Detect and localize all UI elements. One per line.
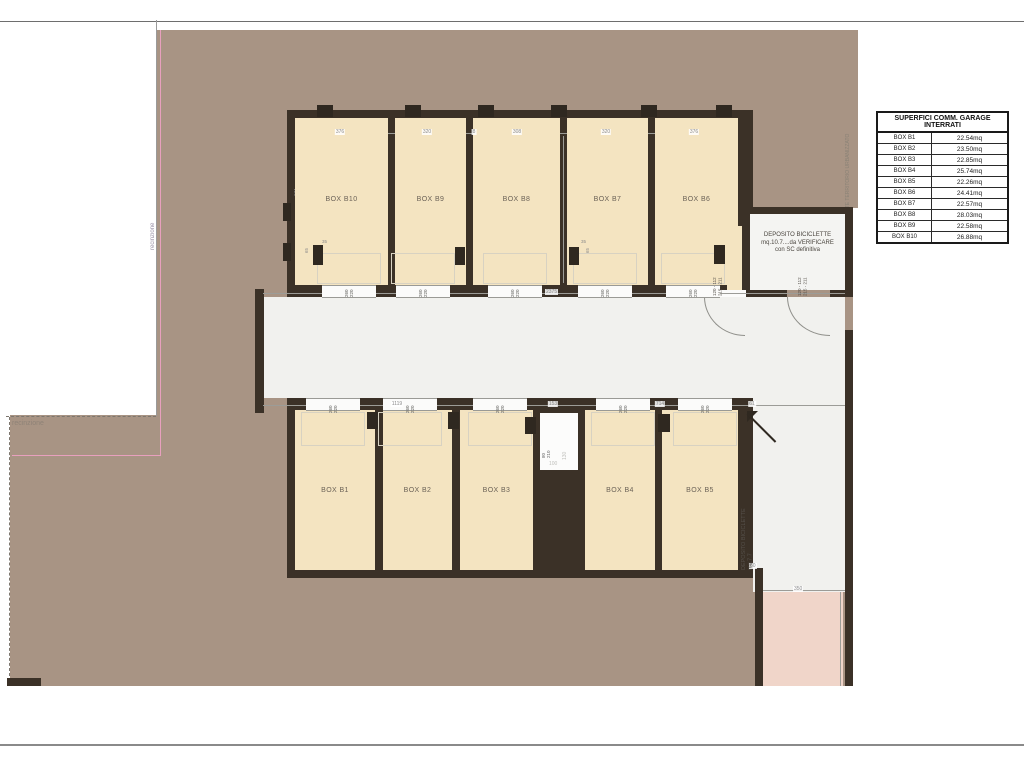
shaft-door-h: 210 [546,428,551,458]
garage-box-label: BOX B7 [594,196,622,204]
garage-door-height: 220 [693,279,698,297]
legend-box-name: BOX B1 [877,132,932,144]
garage-door-height: 220 [515,279,520,297]
ramp-area [763,592,843,686]
dim-corridor-bottom: 153 [548,401,558,407]
pillar [313,245,323,265]
garage-door-height: 220 [410,395,415,413]
dim-ramp-350: 350 [793,586,803,592]
garage-door-swing-zone [301,412,365,446]
garage-door-height: 220 [423,279,428,297]
legend-box-name: BOX B9 [877,221,932,232]
legend-box-name: BOX B10 [877,232,932,244]
pedestrian-door-dim2: 215 - 211 [803,262,809,296]
garage-door-swing-zone [468,412,532,446]
pillar [525,417,536,434]
shaft-divider-line [557,480,558,570]
wall-pilaster [283,203,291,221]
garage-box-label: BOX B2 [404,487,432,495]
shaft-dim-130: 130 [562,438,568,460]
frame-line-bottom [0,744,1024,746]
garage-door-size-label: 260220 [700,395,710,413]
boundary-wall-stub [7,678,41,686]
pillar [367,412,378,429]
dim-top-width: 376 [689,129,699,135]
garage-box-label: BOX B3 [483,487,511,495]
legend-box-area: 24.41mq [932,188,1009,199]
fence-line-horizontal [12,455,160,456]
wall-pilaster [716,105,732,117]
corridor-left-wall [255,289,264,413]
shaft-door-size-label: 80 210 [541,428,551,458]
legend-box-name: BOX B6 [877,188,932,199]
garage-door-swing-zone [673,412,737,446]
deposito-wall-left [742,214,750,297]
garage-door-height: 220 [333,395,338,413]
garage-door-height: 220 [705,395,710,413]
legend-box-area: 22.85mq [932,155,1009,166]
dim-line-depth-mid [563,136,564,283]
garage-door-size-label: 260220 [344,279,354,297]
legend-box-area: 25.74mq [932,166,1009,177]
frame-line-top [0,21,1024,22]
legend-row: BOX B1026.88mq [877,232,1008,244]
dim-corridor-bottom: 1119 [391,401,403,407]
garage-box-label: BOX B1 [321,487,349,495]
legend-row: BOX B922.58mq [877,221,1008,232]
pillar [448,412,459,429]
legend-title: SUPERFICI COMM. GARAGE INTERRATI [877,112,1008,132]
garage-box-label: BOX B10 [326,196,358,204]
right-courtyard [753,297,845,592]
survey-boundary-line [156,20,157,416]
garage-door-size-label: 260220 [688,279,698,297]
garage-box-label: BOX B9 [417,196,445,204]
legend-box-area: 22.54mq [932,132,1009,144]
pedestrian-door-dim2: 215 - 211 [718,262,724,296]
shaft-dim-100: 100 [549,461,557,467]
garage-door-size-label: 260220 [600,279,610,297]
garage-box-label: BOX B5 [686,487,714,495]
wall-pilaster [283,243,291,261]
legend-row: BOX B828.03mq [877,210,1008,221]
wall-pilaster [551,105,567,117]
dim-corridor-top: 2375 [545,289,558,295]
garage-door-size-label: 260220 [510,279,520,297]
garage-door-size-label: 260220 [495,395,505,413]
legend-row: BOX B722.57mq [877,199,1008,210]
deposito-wall-top [742,207,853,214]
legend-row: BOX B425.74mq [877,166,1008,177]
dim-line-ramp [763,590,845,591]
legend-row: BOX B522.26mq [877,177,1008,188]
legend-box-area: 22.26mq [932,177,1009,188]
legend-row: BOX B122.54mq [877,132,1008,144]
pedestrian-door-size-label: 120 - 112215 - 211 [797,262,808,296]
garage-door-swing-zone [591,412,655,446]
pillar [455,247,465,265]
deposito-room-label: DEPOSITO BICICLETTE mq.10.7....da VERIFI… [748,232,847,255]
dim-top-width: 376 [335,129,345,135]
wall-pilaster [641,105,657,117]
garage-door-size-label: 260220 [328,395,338,413]
legend-box-area: 22.57mq [932,199,1009,210]
legend-row: BOX B624.41mq [877,188,1008,199]
legend-box-area: 26.88mq [932,232,1009,244]
boundary-dashed-horizontal [6,416,156,417]
site-right-wall [845,330,853,686]
ramp-left-wall [755,568,763,686]
ramp-extension-line [840,592,841,686]
garage-door-size-label: 260220 [405,395,415,413]
legend-row: BOX B223.50mq [877,144,1008,155]
pillar [569,247,579,265]
legend-table: SUPERFICI COMM. GARAGE INTERRATI BOX B12… [876,111,1009,244]
dim-pillar-height: 65 [304,248,310,253]
dim-corridor-bottom: 61 [748,401,756,407]
wall-pilaster [405,105,421,117]
legend-box-area: 28.03mq [932,210,1009,221]
legend-box-name: BOX B7 [877,199,932,210]
deposito-right-line2: mq.7.7 [748,455,755,570]
dim-top-width: 320 [601,129,611,135]
territory-limit-label: LIMITE TERRITORIO URBANIZZATO [845,106,851,218]
garage-door-size-label: 260220 [618,395,628,413]
dim-top-width: 320 [422,129,432,135]
garage-box-label: BOX B6 [683,196,711,204]
pedestrian-door-size-label: 120 - 112215 - 211 [712,262,723,296]
garage-box-label: BOX B8 [503,196,531,204]
legend-box-name: BOX B8 [877,210,932,221]
garage-door-height: 220 [349,279,354,297]
deposito-line2: mq.10.7....da VERIFICARE [748,240,847,248]
deposito-line3: con SC definitiva [748,247,847,255]
legend-box-name: BOX B5 [877,177,932,188]
pillar [658,414,670,432]
dim-pillar-height: 65 [585,248,591,253]
garage-door-height: 220 [623,395,628,413]
garage-box-label: BOX B4 [606,487,634,495]
legend-row: BOX B322.85mq [877,155,1008,166]
boundary-dashed-vertical [9,417,10,686]
fence-label-bottom: recinzione [12,421,44,427]
garage-door-size-label: 260220 [418,279,428,297]
garage-door-swing-zone [378,412,442,446]
wall-pilaster [478,105,494,117]
deposito-line1: DEPOSITO BICICLETTE [748,232,847,240]
legend-box-name: BOX B4 [877,166,932,177]
fence-label-left: recinzione [150,150,156,250]
legend-box-area: 23.50mq [932,144,1009,155]
legend-box-name: BOX B2 [877,144,932,155]
dim-corridor-bottom: 714 [655,401,665,407]
legend-box-name: BOX B3 [877,155,932,166]
dim-top-width: 308 [512,129,522,135]
floor-plan-canvas: recinzione recinzione LIMITE TERRITORIO … [0,0,1024,768]
dim-pillar-width: 35 [581,239,586,245]
wall-pilaster [317,105,333,117]
dim-pillar-width: 35 [322,239,327,245]
garage-door-height: 220 [605,279,610,297]
fence-line-vertical [160,30,161,456]
legend-box-area: 22.58mq [932,221,1009,232]
dim-top-width: 8 [472,129,477,135]
garage-door-height: 220 [500,395,505,413]
deposito-right-label: DEPOSITO BICICLETTE mq.7.7 [741,455,754,570]
